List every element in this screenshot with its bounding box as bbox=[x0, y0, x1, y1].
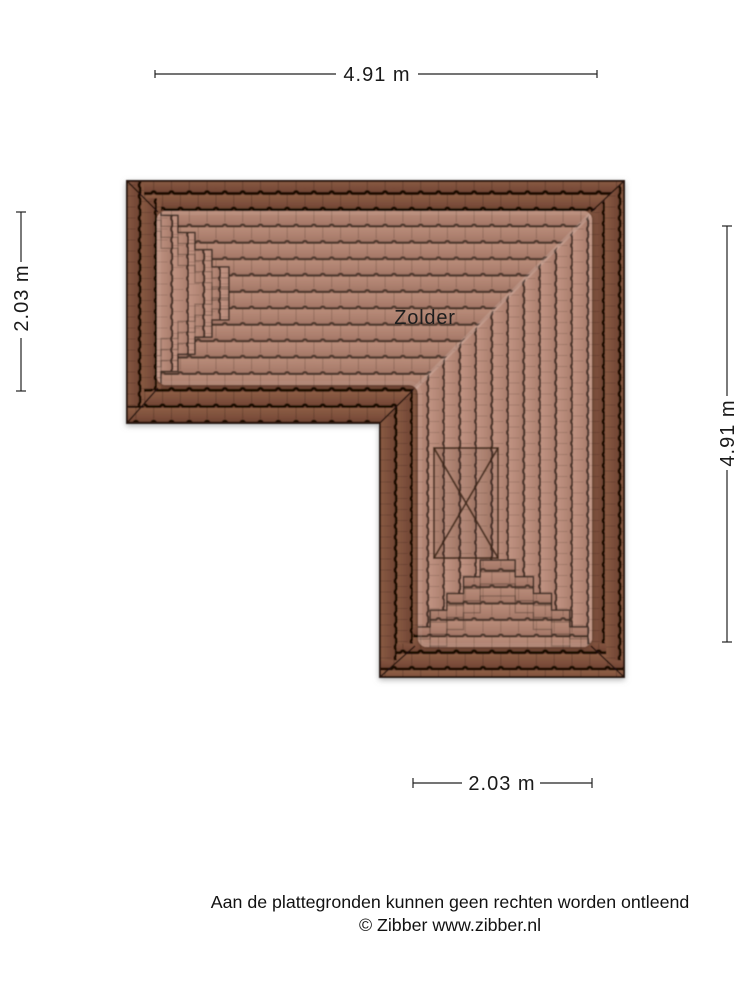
svg-text:© Zibber www.zibber.nl: © Zibber www.zibber.nl bbox=[359, 915, 541, 935]
svg-text:4.91 m: 4.91 m bbox=[343, 64, 410, 86]
svg-text:Aan de plattegronden kunnen ge: Aan de plattegronden kunnen geen rechten… bbox=[211, 892, 690, 912]
svg-text:2.03 m: 2.03 m bbox=[468, 773, 535, 795]
svg-text:2.03 m: 2.03 m bbox=[11, 264, 33, 331]
svg-text:4.91 m: 4.91 m bbox=[717, 399, 739, 466]
svg-text:Zolder: Zolder bbox=[394, 307, 456, 329]
